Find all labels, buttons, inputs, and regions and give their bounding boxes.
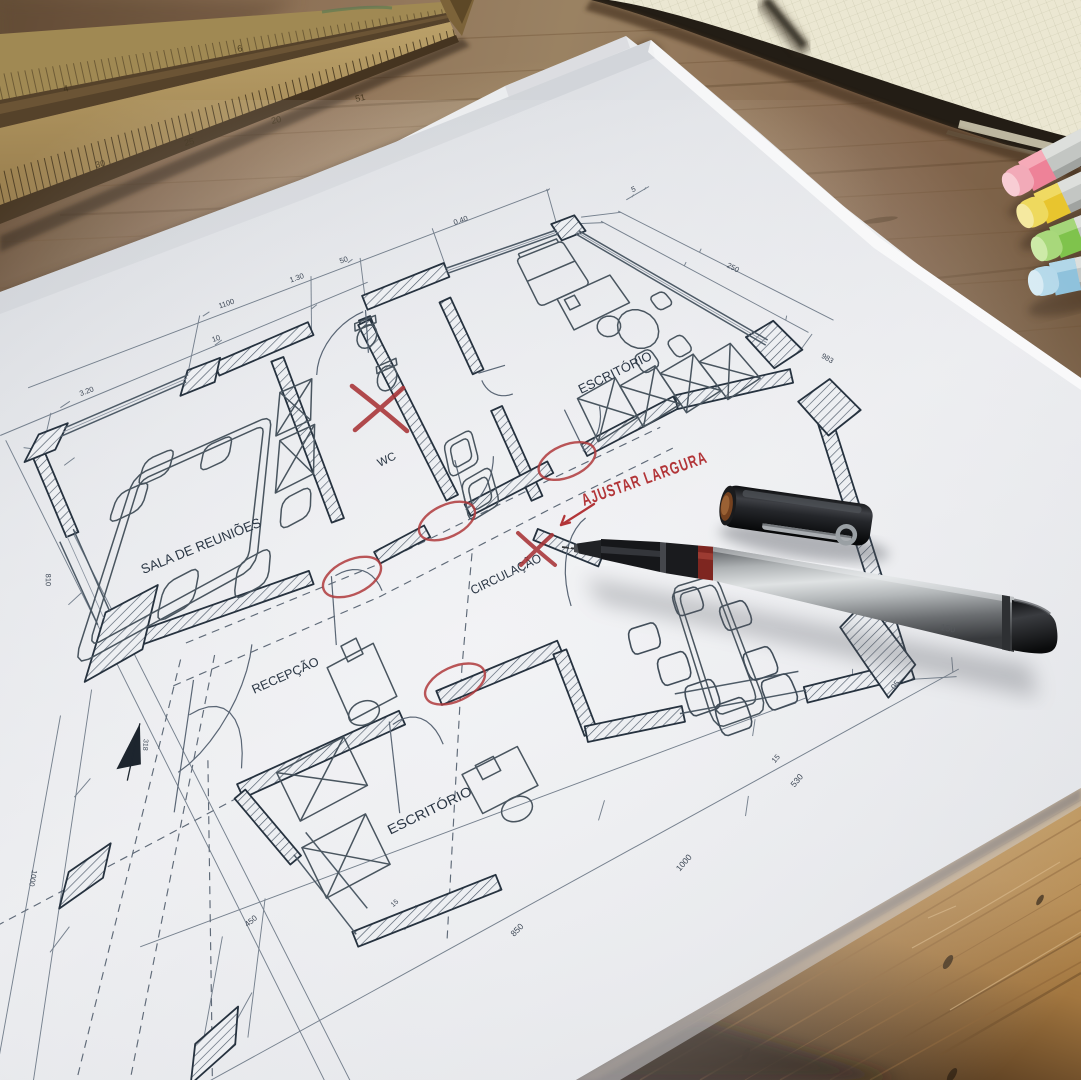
- svg-text:AJUSTAR LARGURA: AJUSTAR LARGURA: [579, 448, 710, 510]
